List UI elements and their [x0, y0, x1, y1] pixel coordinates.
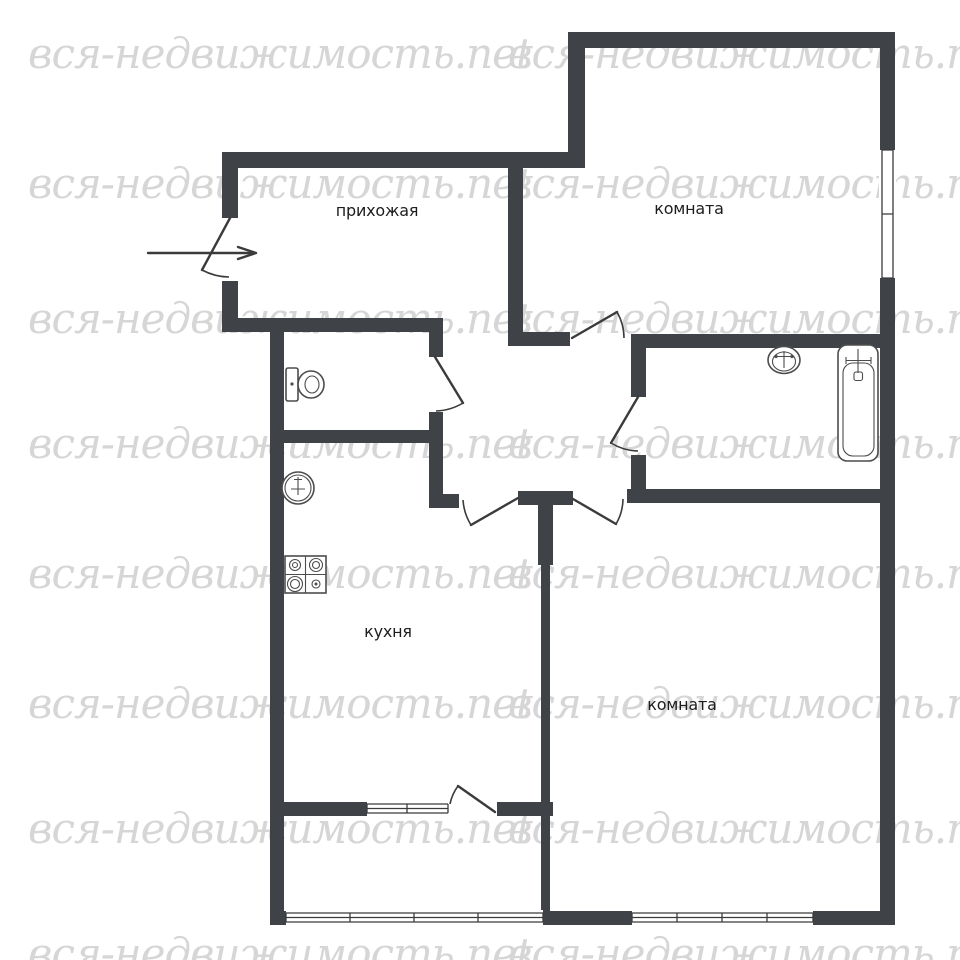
window-room-bottom: [632, 910, 813, 925]
wall: [497, 802, 553, 816]
wall: [508, 168, 523, 332]
wall: [222, 318, 443, 332]
watermark-text: вся-недвижимость.net: [508, 929, 960, 960]
toilet-icon: [286, 368, 324, 401]
wall: [270, 802, 367, 816]
sink-icon: [282, 472, 314, 504]
entry-arrow-icon: [148, 247, 256, 259]
watermark-text: вся-недвижимость.net: [28, 29, 533, 78]
wall: [222, 152, 238, 218]
floor-plan-page: вся-недвижимость.netвся-недвижимость.net…: [0, 0, 960, 960]
room-bottom-door: [573, 499, 623, 524]
window-room-top: [879, 150, 896, 278]
kitchen-door: [463, 498, 518, 525]
wall: [568, 32, 585, 154]
label-room-top: комната: [654, 199, 724, 218]
wall: [631, 334, 646, 397]
wc-door: [435, 357, 463, 411]
wall: [627, 489, 895, 503]
stove-icon: [285, 556, 326, 593]
bathtub-icon: [838, 345, 878, 461]
wall: [813, 911, 895, 925]
wall: [429, 332, 443, 357]
washbasin-icon: [768, 347, 800, 374]
wall: [538, 491, 553, 565]
label-room-bottom: комната: [647, 695, 717, 714]
watermark-text: вся-недвижимость.net: [28, 929, 533, 960]
wall: [270, 911, 286, 925]
window-kitchen-balcony: [367, 802, 448, 816]
wall: [880, 278, 895, 925]
wall: [541, 565, 550, 925]
label-hallway: прихожая: [336, 201, 419, 220]
entrance-door: [202, 218, 230, 277]
wall: [429, 494, 459, 508]
wall: [508, 332, 570, 346]
wall: [543, 911, 632, 925]
wall: [222, 152, 585, 168]
window-balcony-bottom: [286, 910, 543, 925]
wall: [568, 32, 895, 48]
wall: [270, 330, 284, 925]
wall: [880, 32, 895, 150]
wall: [429, 412, 443, 497]
floor-plan: вся-недвижимость.netвся-недвижимость.net…: [0, 0, 960, 960]
label-kitchen: кухня: [364, 622, 412, 641]
wall: [277, 430, 429, 443]
